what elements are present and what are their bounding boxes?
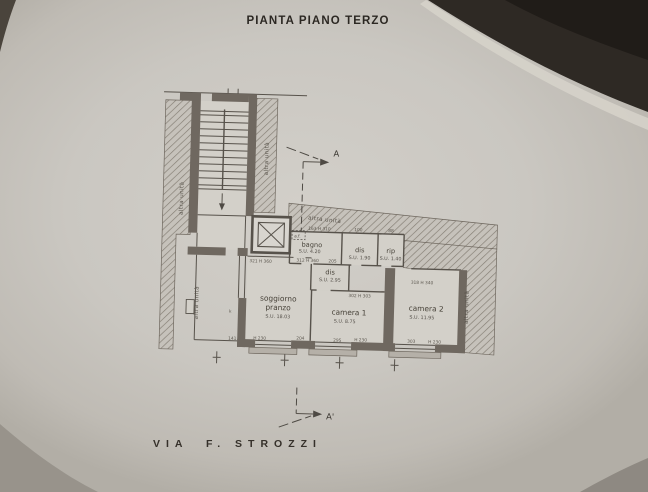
room-area-dis: S.U. 1.90: [349, 255, 371, 262]
dim-label: H 230: [428, 339, 441, 345]
window-tick-icon: [280, 354, 288, 366]
dim-label: k: [229, 309, 232, 315]
altra-unita-label: altra unità: [178, 181, 186, 215]
room-label-dis2: dis: [325, 268, 335, 276]
room-label-dis: dis: [355, 246, 365, 254]
room-area-soggiorno: S.U. 18.03: [265, 314, 290, 321]
dim-label: 141: [228, 336, 237, 342]
altra-unita-label: altra unità: [263, 142, 271, 176]
dim-label: 295: [333, 338, 342, 344]
dim-label: 204: [296, 336, 305, 342]
section-marker-a: A: [333, 149, 339, 159]
street-label: VIA F. STROZZI: [153, 438, 322, 450]
dim-label: a.f.: [294, 233, 301, 239]
bottom-right-shadow: [580, 458, 648, 492]
dim-label: H 230: [354, 337, 367, 343]
dim-label: 163 H 310: [308, 226, 331, 233]
floor-plan-drawing: A A' altra unità altra unità altra unità…: [0, 0, 648, 492]
dim-label: 302 H 303: [348, 293, 371, 300]
dim-label: 303: [407, 339, 416, 345]
floor-plan-photo: PIANTA PIANO TERZO: [0, 0, 648, 492]
dim-label: 100: [354, 227, 363, 233]
dim-label: 88: [388, 228, 394, 234]
room-area-camera2: S.U. 11.95: [409, 315, 434, 322]
altra-unita-label: altra unità: [463, 290, 471, 324]
room-area-dis2: S.U. 2.95: [319, 277, 341, 284]
top-left-shadow: [0, 0, 16, 52]
altra-unita-label: altra unità: [193, 286, 201, 320]
dim-label: 321 H 360: [249, 258, 272, 265]
room-area-bagno: S.U. 4.20: [299, 249, 321, 256]
section-marker-a-prime: A': [326, 412, 334, 422]
room-label-camera1: camera 1: [331, 307, 366, 317]
room-label-pranzo: pranzo: [265, 303, 291, 313]
room-area-camera1: S.U. 8.75: [334, 319, 356, 326]
dim-label: H 230: [253, 335, 266, 341]
window-tick-icon: [335, 357, 343, 369]
window-tick-icon: [390, 359, 398, 371]
dim-label: 318 H 340: [411, 280, 434, 287]
dim-label: 312 H 360: [296, 257, 319, 264]
room-label-bagno: bagno: [301, 241, 322, 250]
room-label-rip: rip: [386, 247, 395, 255]
room-area-rip: S.U. 1.40: [380, 256, 402, 263]
bottom-left-shadow: [0, 424, 98, 492]
elevator: [252, 216, 291, 253]
room-label-camera2: camera 2: [409, 304, 444, 314]
dim-label: 205: [328, 258, 337, 264]
window-tick-icon: [213, 351, 221, 363]
